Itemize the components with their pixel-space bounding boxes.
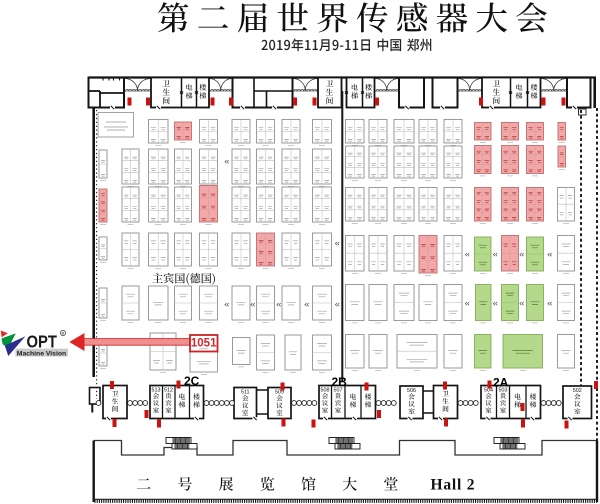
svg-text:1051: 1051 [191, 337, 217, 349]
svg-text:509: 509 [275, 390, 284, 396]
svg-text:OPT: OPT [27, 332, 58, 352]
svg-text:Machine Vision: Machine Vision [17, 350, 66, 357]
svg-text:2B: 2B [332, 375, 348, 389]
svg-text:512: 512 [164, 388, 173, 394]
svg-text:2A: 2A [493, 376, 509, 390]
svg-text:513: 513 [152, 388, 161, 394]
svg-text:R: R [61, 331, 64, 336]
svg-text:511: 511 [241, 390, 250, 396]
svg-text:502: 502 [573, 388, 582, 394]
svg-text:508: 508 [321, 388, 330, 394]
svg-text:506: 506 [407, 388, 416, 394]
svg-text:Hall 2: Hall 2 [431, 477, 475, 494]
svg-text:2C: 2C [184, 374, 200, 388]
